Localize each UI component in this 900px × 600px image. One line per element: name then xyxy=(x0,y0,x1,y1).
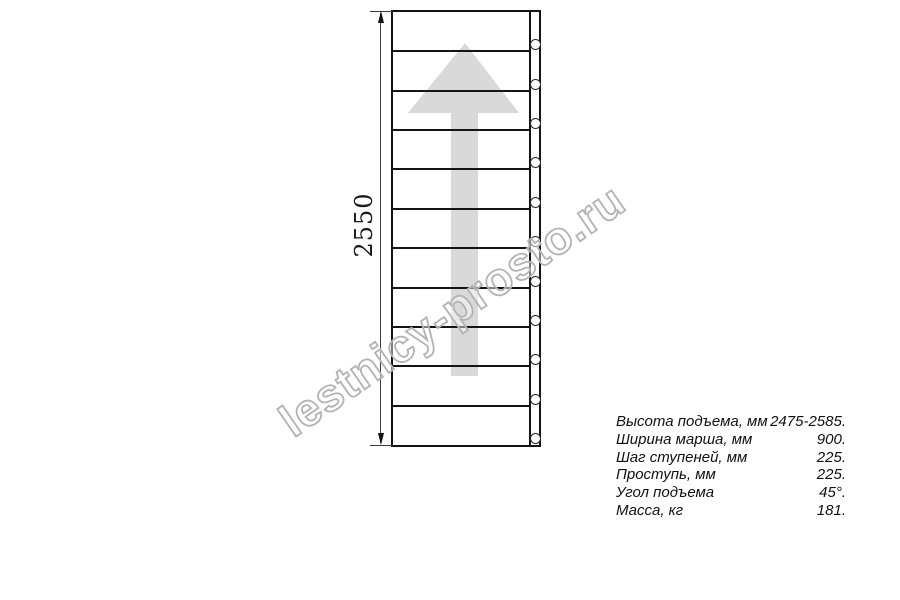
spec-label: Высота подъема, мм xyxy=(616,413,770,431)
mount-hole xyxy=(530,157,541,168)
tread-line xyxy=(393,129,531,131)
spec-row-height: Высота подъема, мм 2475-2585. xyxy=(616,413,846,431)
spec-label: Масса, кг xyxy=(616,502,817,520)
mount-hole xyxy=(530,79,541,90)
stair-drawing-page: 2550 lestnicy-prosto.ru Высота подъема, … xyxy=(0,0,900,600)
dimension-extension-bottom xyxy=(370,445,393,446)
tread-line xyxy=(393,405,531,407)
spec-value: 900. xyxy=(817,431,846,449)
spec-value: 225. xyxy=(817,449,846,467)
mount-hole xyxy=(530,394,541,405)
mount-hole xyxy=(530,197,541,208)
spec-row-tread: Проступь, мм 225. xyxy=(616,466,846,484)
dimension-label: 2550 xyxy=(350,192,378,257)
tread-line xyxy=(393,90,531,92)
dimension-arrow-down-icon xyxy=(378,433,384,445)
dimension-arrow-up-icon xyxy=(378,11,384,23)
spec-value: 45°. xyxy=(819,484,846,502)
tread-line xyxy=(393,168,531,170)
mount-hole xyxy=(530,315,541,326)
spec-label: Проступь, мм xyxy=(616,466,817,484)
spec-row-angle: Угол подъема 45°. xyxy=(616,484,846,502)
spec-row-width: Ширина марша, мм 900. xyxy=(616,431,846,449)
tread-line xyxy=(393,50,531,52)
spec-row-step-pitch: Шаг ступеней, мм 225. xyxy=(616,449,846,467)
spec-label: Шаг ступеней, мм xyxy=(616,449,817,467)
mount-hole xyxy=(530,39,541,50)
spec-value: 225. xyxy=(817,466,846,484)
spec-value: 181. xyxy=(817,502,846,520)
spec-row-mass: Масса, кг 181. xyxy=(616,502,846,520)
mount-hole xyxy=(530,354,541,365)
spec-table: Высота подъема, мм 2475-2585. Ширина мар… xyxy=(616,413,846,520)
mount-hole xyxy=(530,118,541,129)
spec-label: Ширина марша, мм xyxy=(616,431,817,449)
mount-hole xyxy=(530,433,541,444)
tread-line xyxy=(393,208,531,210)
spec-label: Угол подъема xyxy=(616,484,819,502)
spec-value: 2475-2585. xyxy=(770,413,846,431)
stair-flight-drawing xyxy=(391,10,541,447)
